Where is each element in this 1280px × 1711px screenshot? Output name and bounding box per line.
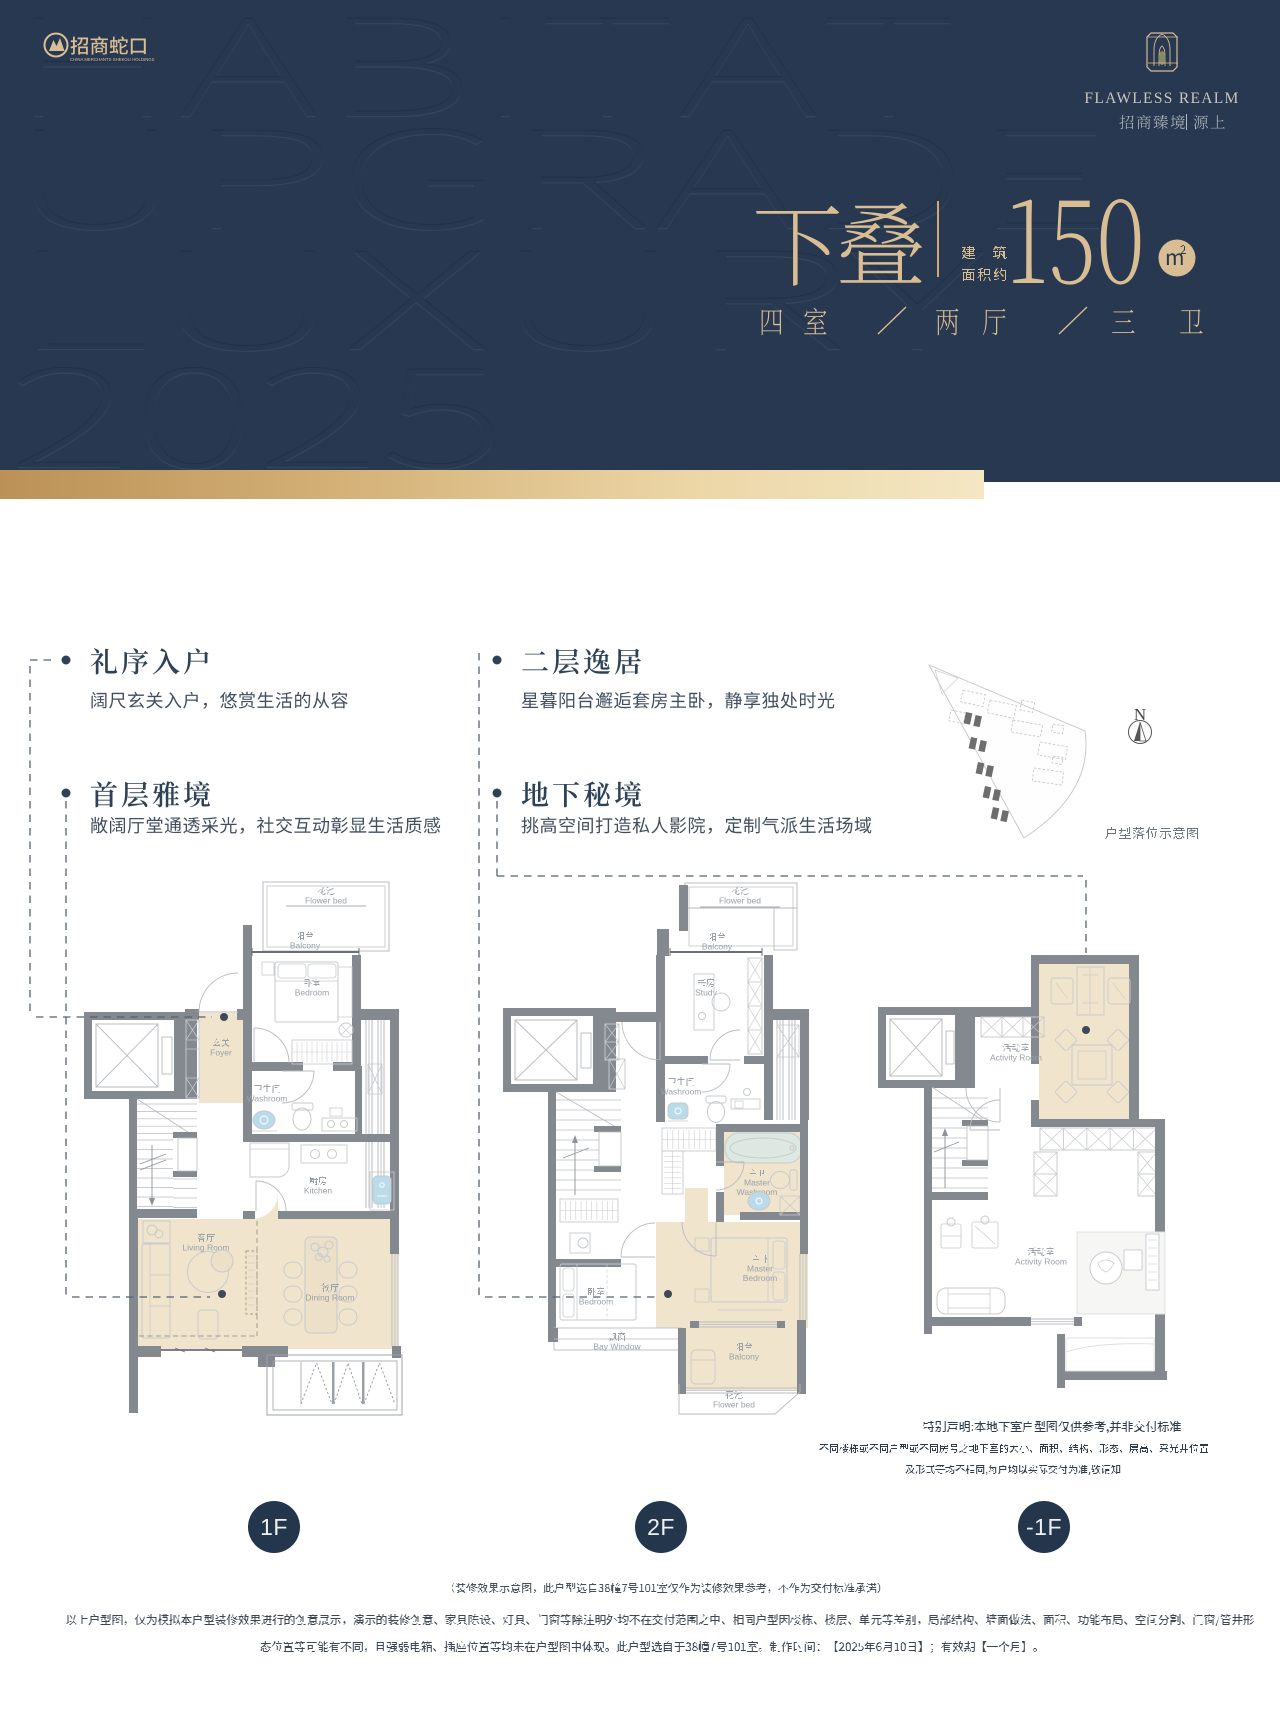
svg-text:Balcony: Balcony <box>702 942 733 952</box>
svg-text:Washroom: Washroom <box>247 1094 288 1104</box>
svg-text:Activity Room: Activity Room <box>990 1053 1042 1063</box>
svg-text:Master: Master <box>744 1178 770 1188</box>
svg-text:Dining Room: Dining Room <box>305 1293 354 1303</box>
svg-text:Balcony: Balcony <box>729 1352 760 1362</box>
svg-text:Flower bed: Flower bed <box>713 1400 755 1410</box>
svg-text:Bay Window: Bay Window <box>593 1342 641 1352</box>
svg-text:Flower bed: Flower bed <box>719 896 761 906</box>
svg-text:Bedroom: Bedroom <box>743 1273 778 1283</box>
svg-text:Bedroom: Bedroom <box>579 1297 614 1307</box>
svg-text:Kitchen: Kitchen <box>304 1186 333 1196</box>
svg-text:Master: Master <box>747 1264 773 1274</box>
svg-text:Balcony: Balcony <box>290 941 321 951</box>
svg-text:CHINA MERCHANTS SHEKOU HOLDING: CHINA MERCHANTS SHEKOU HOLDINGS <box>70 57 155 62</box>
svg-text:Activity Room: Activity Room <box>1015 1257 1067 1267</box>
svg-text:Washroom: Washroom <box>661 1087 702 1097</box>
svg-text:Flower bed: Flower bed <box>305 896 347 906</box>
svg-text:Foyer: Foyer <box>210 1048 232 1058</box>
svg-text:1F: 1F <box>260 1514 288 1540</box>
svg-text:2F: 2F <box>647 1514 675 1540</box>
svg-text:Bedroom: Bedroom <box>295 988 330 998</box>
svg-text:-1F: -1F <box>1026 1514 1062 1540</box>
svg-text:FLAWLESS REALM: FLAWLESS REALM <box>1084 90 1239 107</box>
